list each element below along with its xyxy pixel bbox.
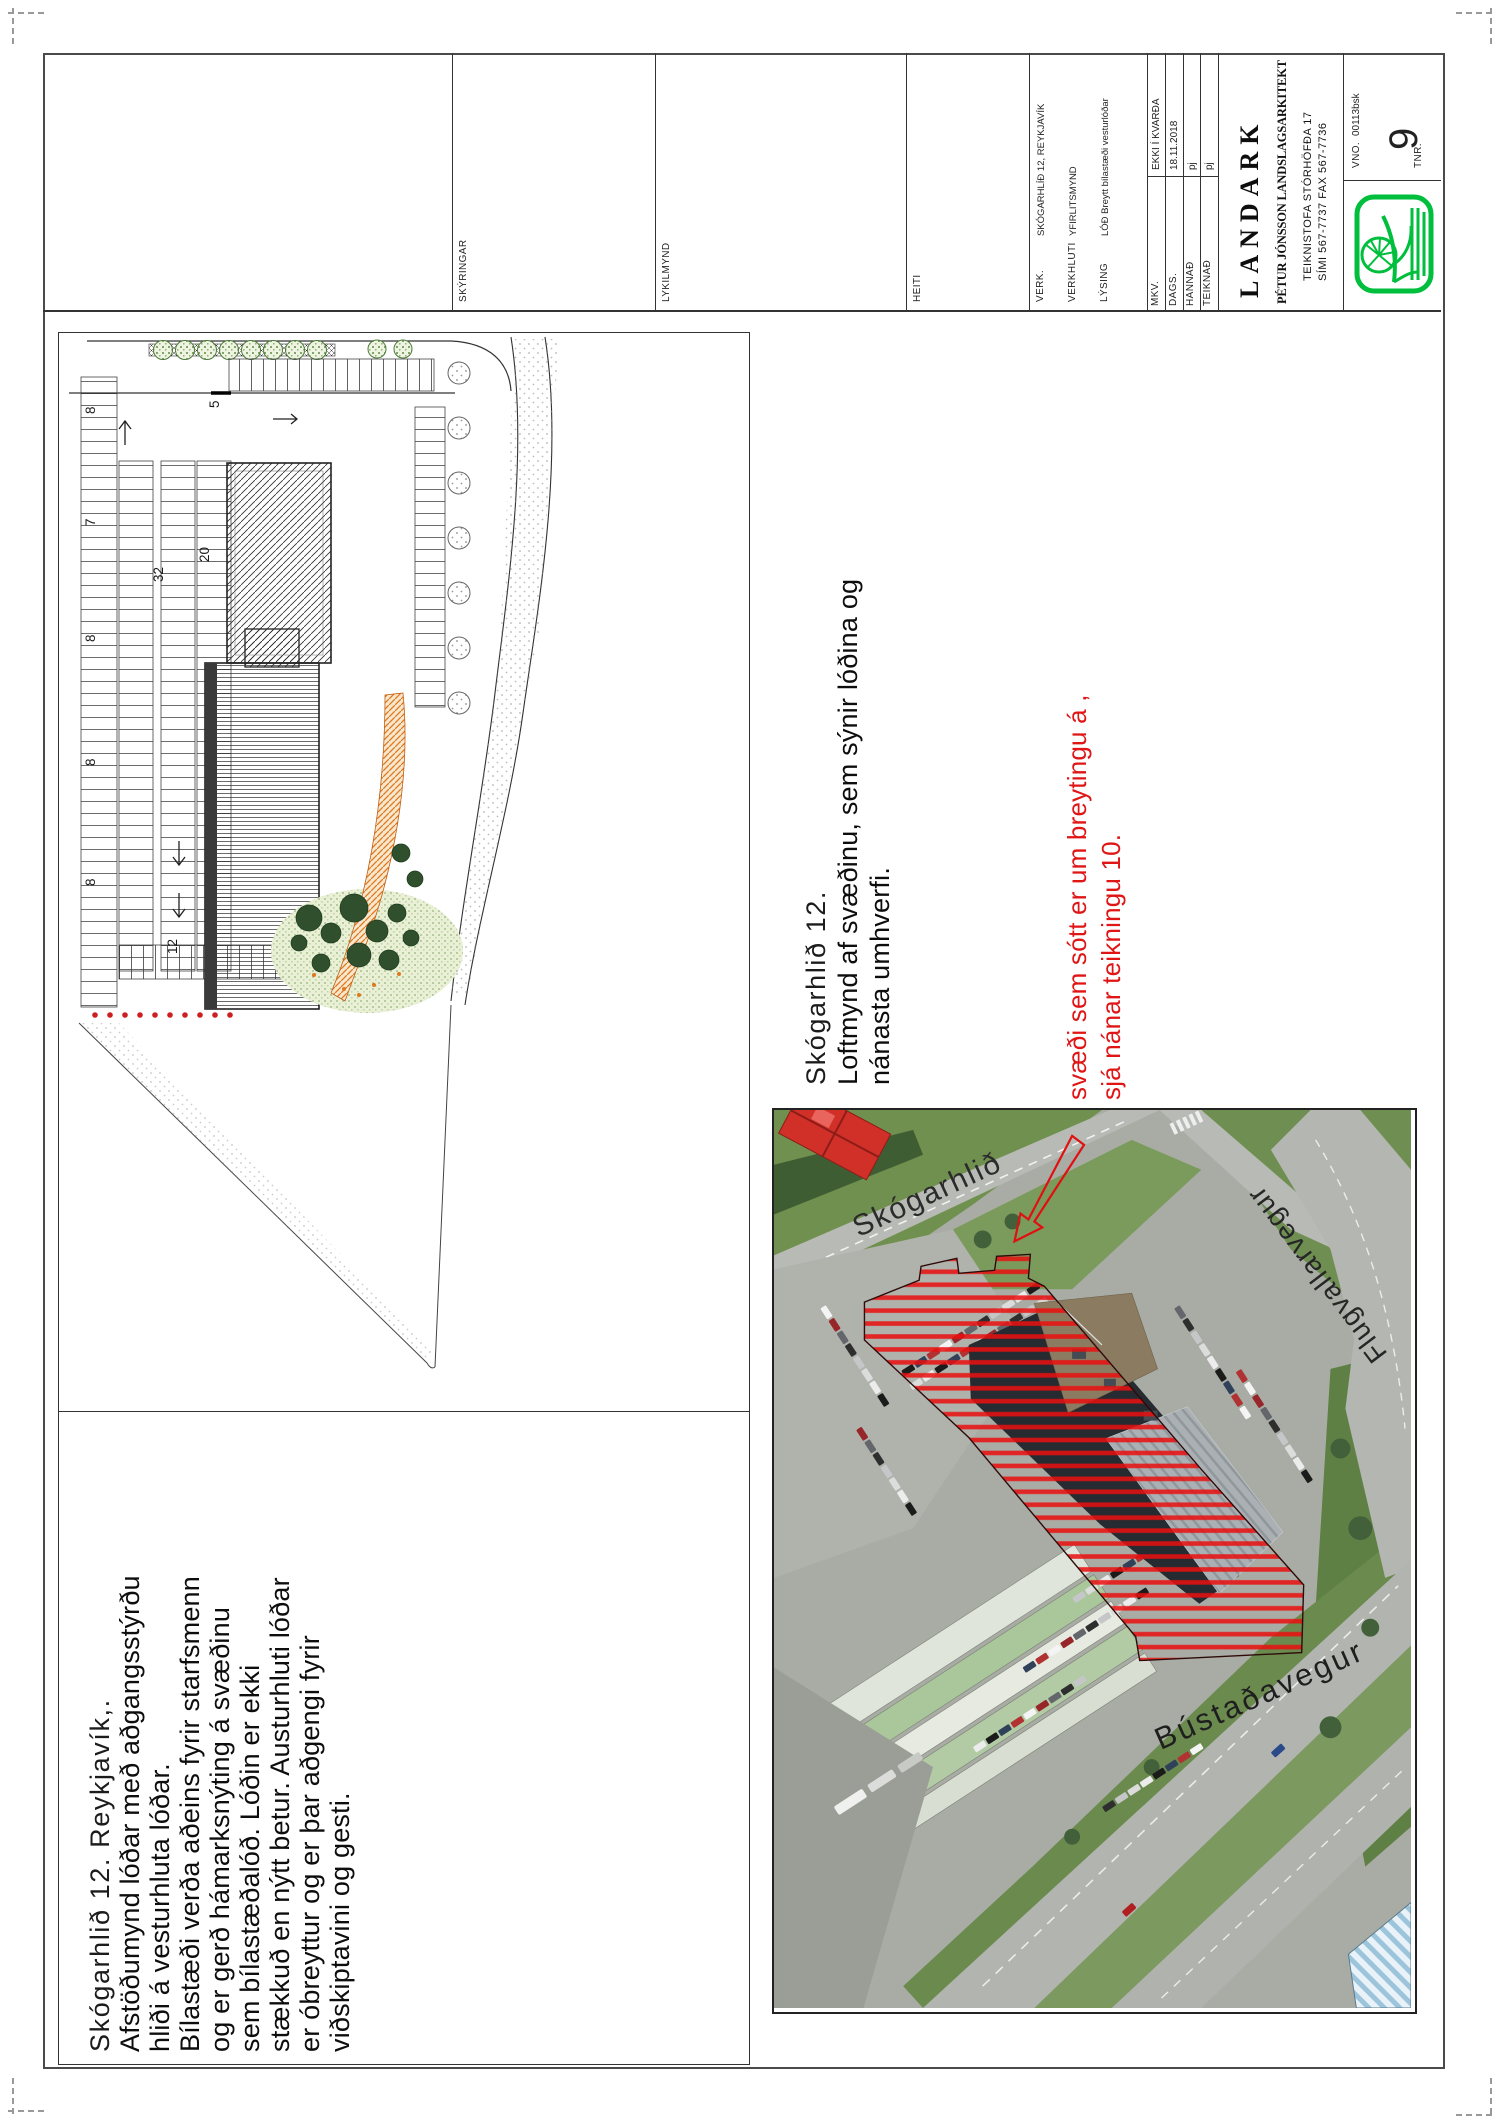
section-label-heiti: HEITI [913, 274, 924, 302]
firm-name: LANDARK [1236, 118, 1263, 298]
band-divider [1200, 53, 1201, 310]
band-divider [655, 53, 656, 310]
band-divider [1218, 53, 1219, 310]
field-label-teiknad: TEIKNAÐ [1203, 260, 1214, 306]
field-value-vno: 00113bsk [1352, 93, 1363, 136]
drawing-sheet: SKÝRINGAR LYKILMYND HEITI VERK. VERKHLUT… [0, 0, 1500, 2122]
section-label-skyringar: SKÝRINGAR [459, 239, 470, 302]
field-value-mkv: EKKI Í KVARÐA [1152, 98, 1163, 170]
notes-middle: Skógarhlið 12. Loftmynd af svæðinu, sem … [800, 420, 896, 1085]
band-divider [906, 53, 907, 310]
plan-panel-divider [59, 1411, 749, 1412]
notes-middle-line: Loftmynd af svæðinu, sem sýnir lóðina og [832, 420, 864, 1085]
logo-tree [1357, 197, 1431, 291]
field-value-hannad: pj [1188, 162, 1199, 170]
notes-left-line: hliði á vesturhluta lóðar. [145, 1428, 175, 2052]
plan-count: 8 [84, 406, 98, 414]
plan-count: 8 [84, 634, 98, 642]
sheet-number: 9 [1383, 128, 1425, 150]
notes-red-line: svæði sem sótt er um breytingu á , [1060, 560, 1094, 1100]
section-label-lykilmynd: LYKILMYND [662, 242, 673, 302]
band-divider [452, 53, 453, 310]
field-value-dags: 18.11.2018 [1170, 121, 1181, 170]
plan-count: 32 [152, 567, 166, 582]
field-label-vno: VNO. [1352, 142, 1363, 168]
field-label-hannad: HANNAÐ [1186, 261, 1197, 306]
plan-count: 12 [166, 939, 180, 954]
firm-owner: PÉTUR JÓNSSON LANDSLAGSARKITEKT [1276, 60, 1289, 304]
notes-red: svæði sem sótt er um breytingu á , sjá n… [1060, 560, 1128, 1100]
field-value-verkhluti: YFIRLITSMYND [1069, 166, 1079, 236]
plan-count: 5 [208, 400, 222, 408]
field-label-lysing: LÝSING [1100, 263, 1111, 302]
notes-left-line: og er gerð hámarksnýting á svæðinu [205, 1428, 235, 2052]
plan-count: 8 [84, 878, 98, 886]
field-value-lysing: LÓÐ Breytt bílastæði vesturlóðar [1101, 98, 1111, 236]
field-label-verk: VERK. [1036, 270, 1047, 302]
band-bottom-line [43, 310, 1441, 312]
field-label-mkv: MKV. [1151, 281, 1162, 306]
band-divider [1147, 53, 1148, 310]
notes-left-line: Afstöðumynd lóðar með aðgangsstýrðu [115, 1428, 145, 2052]
plan-perimeter-trees [448, 362, 470, 714]
plan-count: 7 [84, 518, 98, 526]
field-label-verkhluti: VERKHLUTI [1068, 242, 1079, 302]
notes-left-line: er óbreyttur og er þar aðgengi fyrir [295, 1428, 325, 2052]
plan-building-a [227, 463, 331, 663]
field-label-dags: DAGS. [1169, 273, 1180, 306]
notes-left-line: stækkuð en nýtt betur. Austurhluti lóðar [265, 1428, 295, 2052]
firm-address: TEIKNISTOFA STÓRHÖFÐA 17 [1303, 111, 1315, 281]
plan-shrub-row [92, 1012, 233, 1018]
notes-left-line: viðskiptavini og gesti. [325, 1428, 355, 2052]
band-divider [1165, 53, 1166, 310]
notes-red-line: sjá nánar teikningu 10. [1094, 560, 1128, 1100]
firm-phones: SÍMI 567-7737 FAX 567-7736 [1318, 122, 1330, 281]
aerial-photo: Skógarhlið Flugvallarvegur Bústaðavegur [772, 1108, 1417, 2014]
plan-wedge-stipple [79, 1023, 435, 1363]
plan-street-trees [154, 340, 413, 360]
band-divider [1029, 53, 1030, 310]
band-divider [1343, 53, 1344, 310]
vno-logo-divider [1343, 180, 1441, 181]
plan-gravel-strip [451, 339, 559, 997]
site-plan-drawing [59, 333, 749, 1411]
notes-left-line: Bílastæði verða aðeins fyrir starfsmenn [175, 1428, 205, 2052]
plan-count: 20 [198, 547, 212, 562]
field-value-teiknad: pj [1205, 162, 1216, 170]
notes-middle-line: nánasta umhverfi. [864, 420, 896, 1085]
band-divider [1183, 53, 1184, 310]
mkv-table-line [1147, 176, 1218, 177]
plan-count: 8 [84, 758, 98, 766]
notes-middle-line: Skógarhlið 12. [800, 420, 832, 1085]
field-value-verk: SKÓGARHLÍÐ 12, REYKJAVÍK [1037, 104, 1047, 236]
landark-logo [1352, 192, 1436, 296]
notes-left-line: Skógarhlið 12. Reykjavík,. [85, 1428, 115, 2052]
notes-left-line: sem bílastæðalóð. Lóðin er ekki [235, 1428, 265, 2052]
notes-left: Skógarhlið 12. Reykjavík,. Afstöðumynd l… [85, 1428, 355, 2052]
aerial-photo-art: Skógarhlið Flugvallarvegur Bústaðavegur [774, 1110, 1411, 2008]
